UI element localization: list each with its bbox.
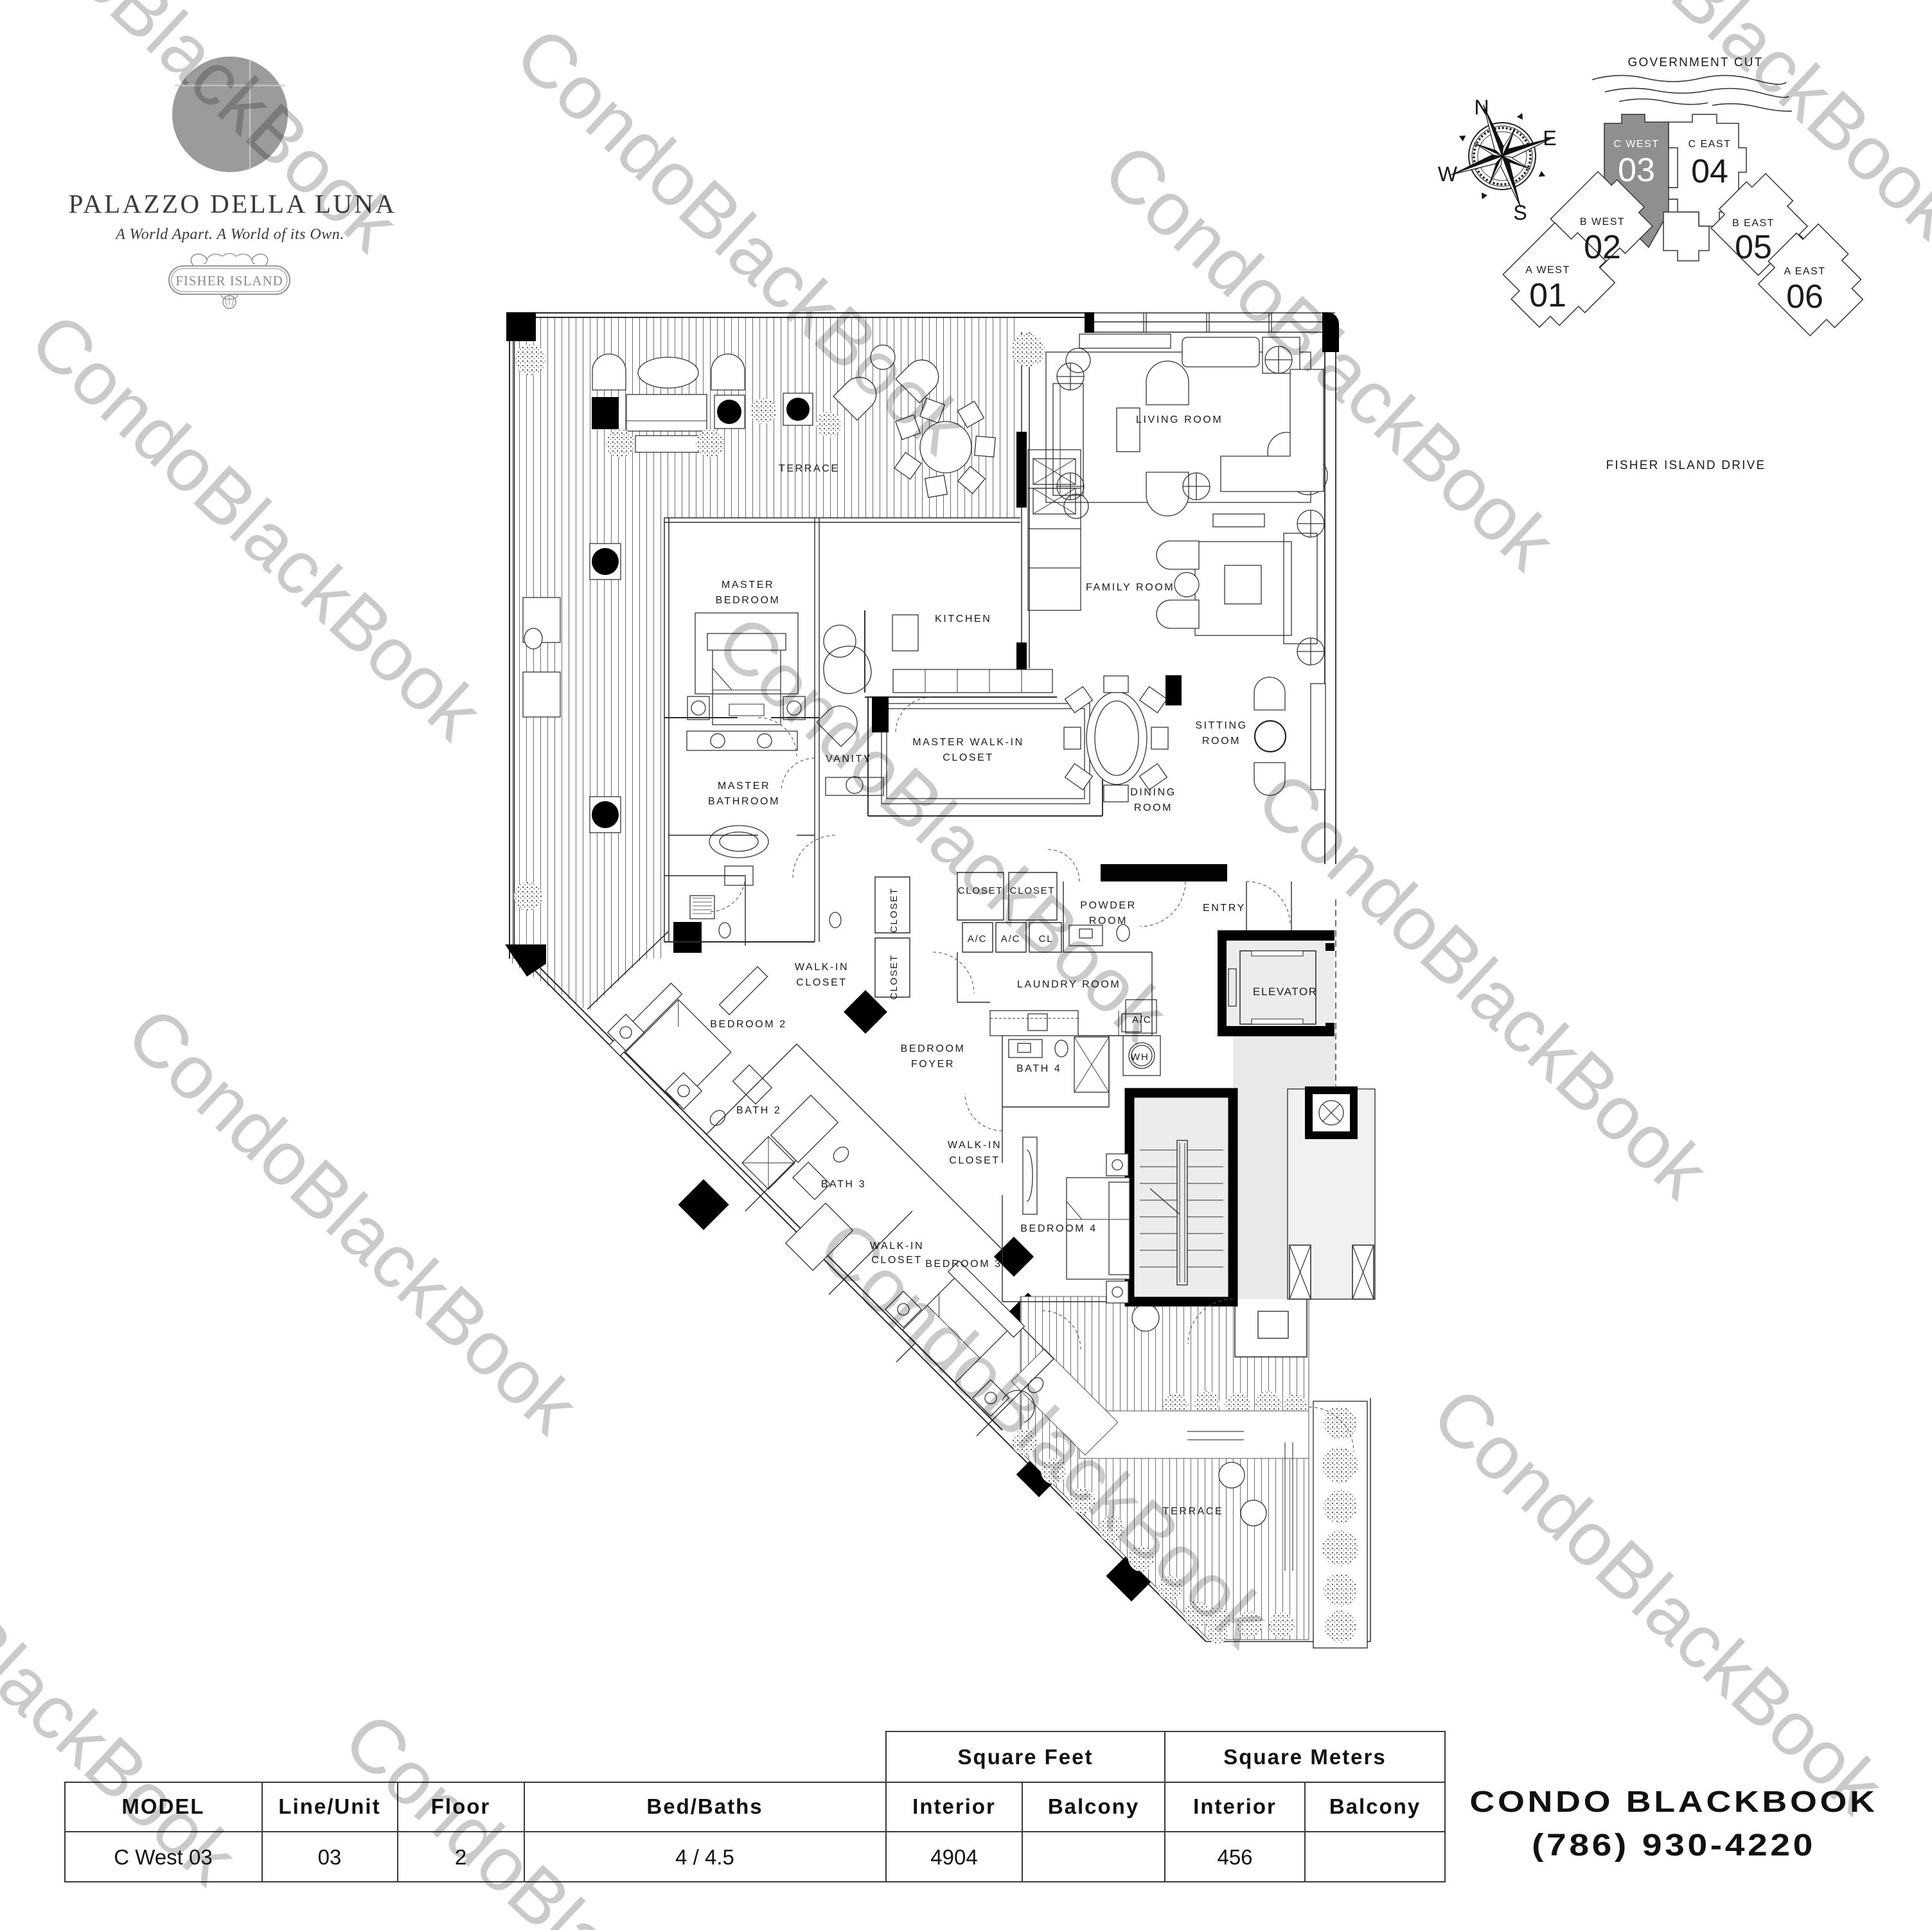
svg-text:BEDROOM 2: BEDROOM 2 — [710, 1019, 786, 1030]
svg-text:S: S — [1513, 201, 1527, 224]
svg-text:4 / 4.5: 4 / 4.5 — [675, 1845, 734, 1869]
svg-text:FISHER ISLAND: FISHER ISLAND — [175, 273, 283, 288]
svg-text:WALK-IN: WALK-IN — [795, 962, 849, 973]
svg-text:FAMILY ROOM: FAMILY ROOM — [1086, 582, 1174, 593]
svg-text:W: W — [1438, 163, 1458, 186]
svg-text:CLOSET: CLOSET — [889, 954, 900, 1000]
svg-text:BATH 2: BATH 2 — [736, 1105, 781, 1116]
svg-text:BATHROOM: BATHROOM — [708, 796, 780, 807]
svg-text:DINING: DINING — [1130, 787, 1176, 798]
svg-text:BEDROOM 4: BEDROOM 4 — [1020, 1223, 1097, 1234]
svg-text:FOYER: FOYER — [911, 1059, 955, 1070]
svg-text:FISHER ISLAND DRIVE: FISHER ISLAND DRIVE — [1606, 459, 1766, 472]
svg-text:ENTRY: ENTRY — [1203, 903, 1246, 914]
svg-text:456: 456 — [1217, 1845, 1252, 1869]
svg-text:C WEST: C WEST — [1613, 139, 1659, 150]
svg-text:BATH 4: BATH 4 — [1016, 1063, 1061, 1074]
svg-text:CLOSET: CLOSET — [943, 752, 994, 763]
svg-text:N: N — [1474, 96, 1489, 119]
svg-text:BEDROOM: BEDROOM — [716, 595, 781, 606]
svg-text:MASTER: MASTER — [722, 580, 774, 590]
svg-text:Square Meters: Square Meters — [1223, 1745, 1386, 1769]
svg-text:A World Apart. A World of its: A World Apart. A World of its Own. — [114, 226, 344, 243]
svg-text:01: 01 — [1529, 277, 1566, 314]
svg-text:MASTER: MASTER — [718, 781, 770, 792]
svg-text:ELEVATOR: ELEVATOR — [1253, 986, 1318, 998]
svg-text:BEDROOM: BEDROOM — [901, 1043, 966, 1054]
svg-text:BEDROOM 3: BEDROOM 3 — [925, 1259, 1002, 1270]
svg-text:LIVING ROOM: LIVING ROOM — [1136, 414, 1223, 425]
svg-text:Interior: Interior — [912, 1794, 996, 1818]
svg-text:CLOSET: CLOSET — [889, 887, 900, 933]
svg-text:C EAST: C EAST — [1688, 139, 1732, 150]
svg-text:03: 03 — [1618, 152, 1655, 189]
svg-text:ROOM: ROOM — [1134, 802, 1173, 813]
svg-text:05: 05 — [1735, 229, 1772, 266]
svg-text:4904: 4904 — [930, 1845, 977, 1869]
svg-text:Interior: Interior — [1193, 1794, 1277, 1818]
svg-text:CLOSET: CLOSET — [949, 1155, 1000, 1166]
svg-text:A WEST: A WEST — [1525, 265, 1570, 276]
svg-text:06: 06 — [1786, 278, 1823, 315]
svg-text:WH: WH — [1131, 1052, 1149, 1063]
svg-text:CLOSET: CLOSET — [796, 977, 847, 988]
svg-text:03: 03 — [318, 1845, 342, 1869]
svg-text:A/C: A/C — [968, 934, 987, 944]
svg-text:B EAST: B EAST — [1732, 218, 1775, 229]
svg-text:Bed/Baths: Bed/Baths — [646, 1794, 763, 1818]
svg-text:Square Feet: Square Feet — [958, 1745, 1094, 1769]
svg-text:Balcony: Balcony — [1329, 1794, 1421, 1818]
svg-text:E: E — [1543, 127, 1556, 150]
svg-text:ROOM: ROOM — [1202, 736, 1241, 747]
svg-text:(786) 930-4220: (786) 930-4220 — [1532, 1827, 1816, 1862]
svg-text:SITTING: SITTING — [1195, 720, 1247, 731]
svg-text:Line/Unit: Line/Unit — [278, 1794, 380, 1818]
svg-text:KITCHEN: KITCHEN — [935, 614, 991, 624]
svg-text:TERRACE: TERRACE — [779, 463, 840, 474]
svg-text:A EAST: A EAST — [1784, 266, 1825, 277]
svg-text:02: 02 — [1584, 229, 1621, 266]
svg-text:Balcony: Balcony — [1048, 1794, 1139, 1818]
svg-text:MASTER WALK-IN: MASTER WALK-IN — [912, 737, 1024, 748]
svg-text:B WEST: B WEST — [1580, 217, 1625, 227]
svg-text:WALK-IN: WALK-IN — [948, 1140, 1002, 1151]
svg-text:BATH 3: BATH 3 — [821, 1179, 866, 1190]
svg-text:04: 04 — [1691, 153, 1728, 190]
